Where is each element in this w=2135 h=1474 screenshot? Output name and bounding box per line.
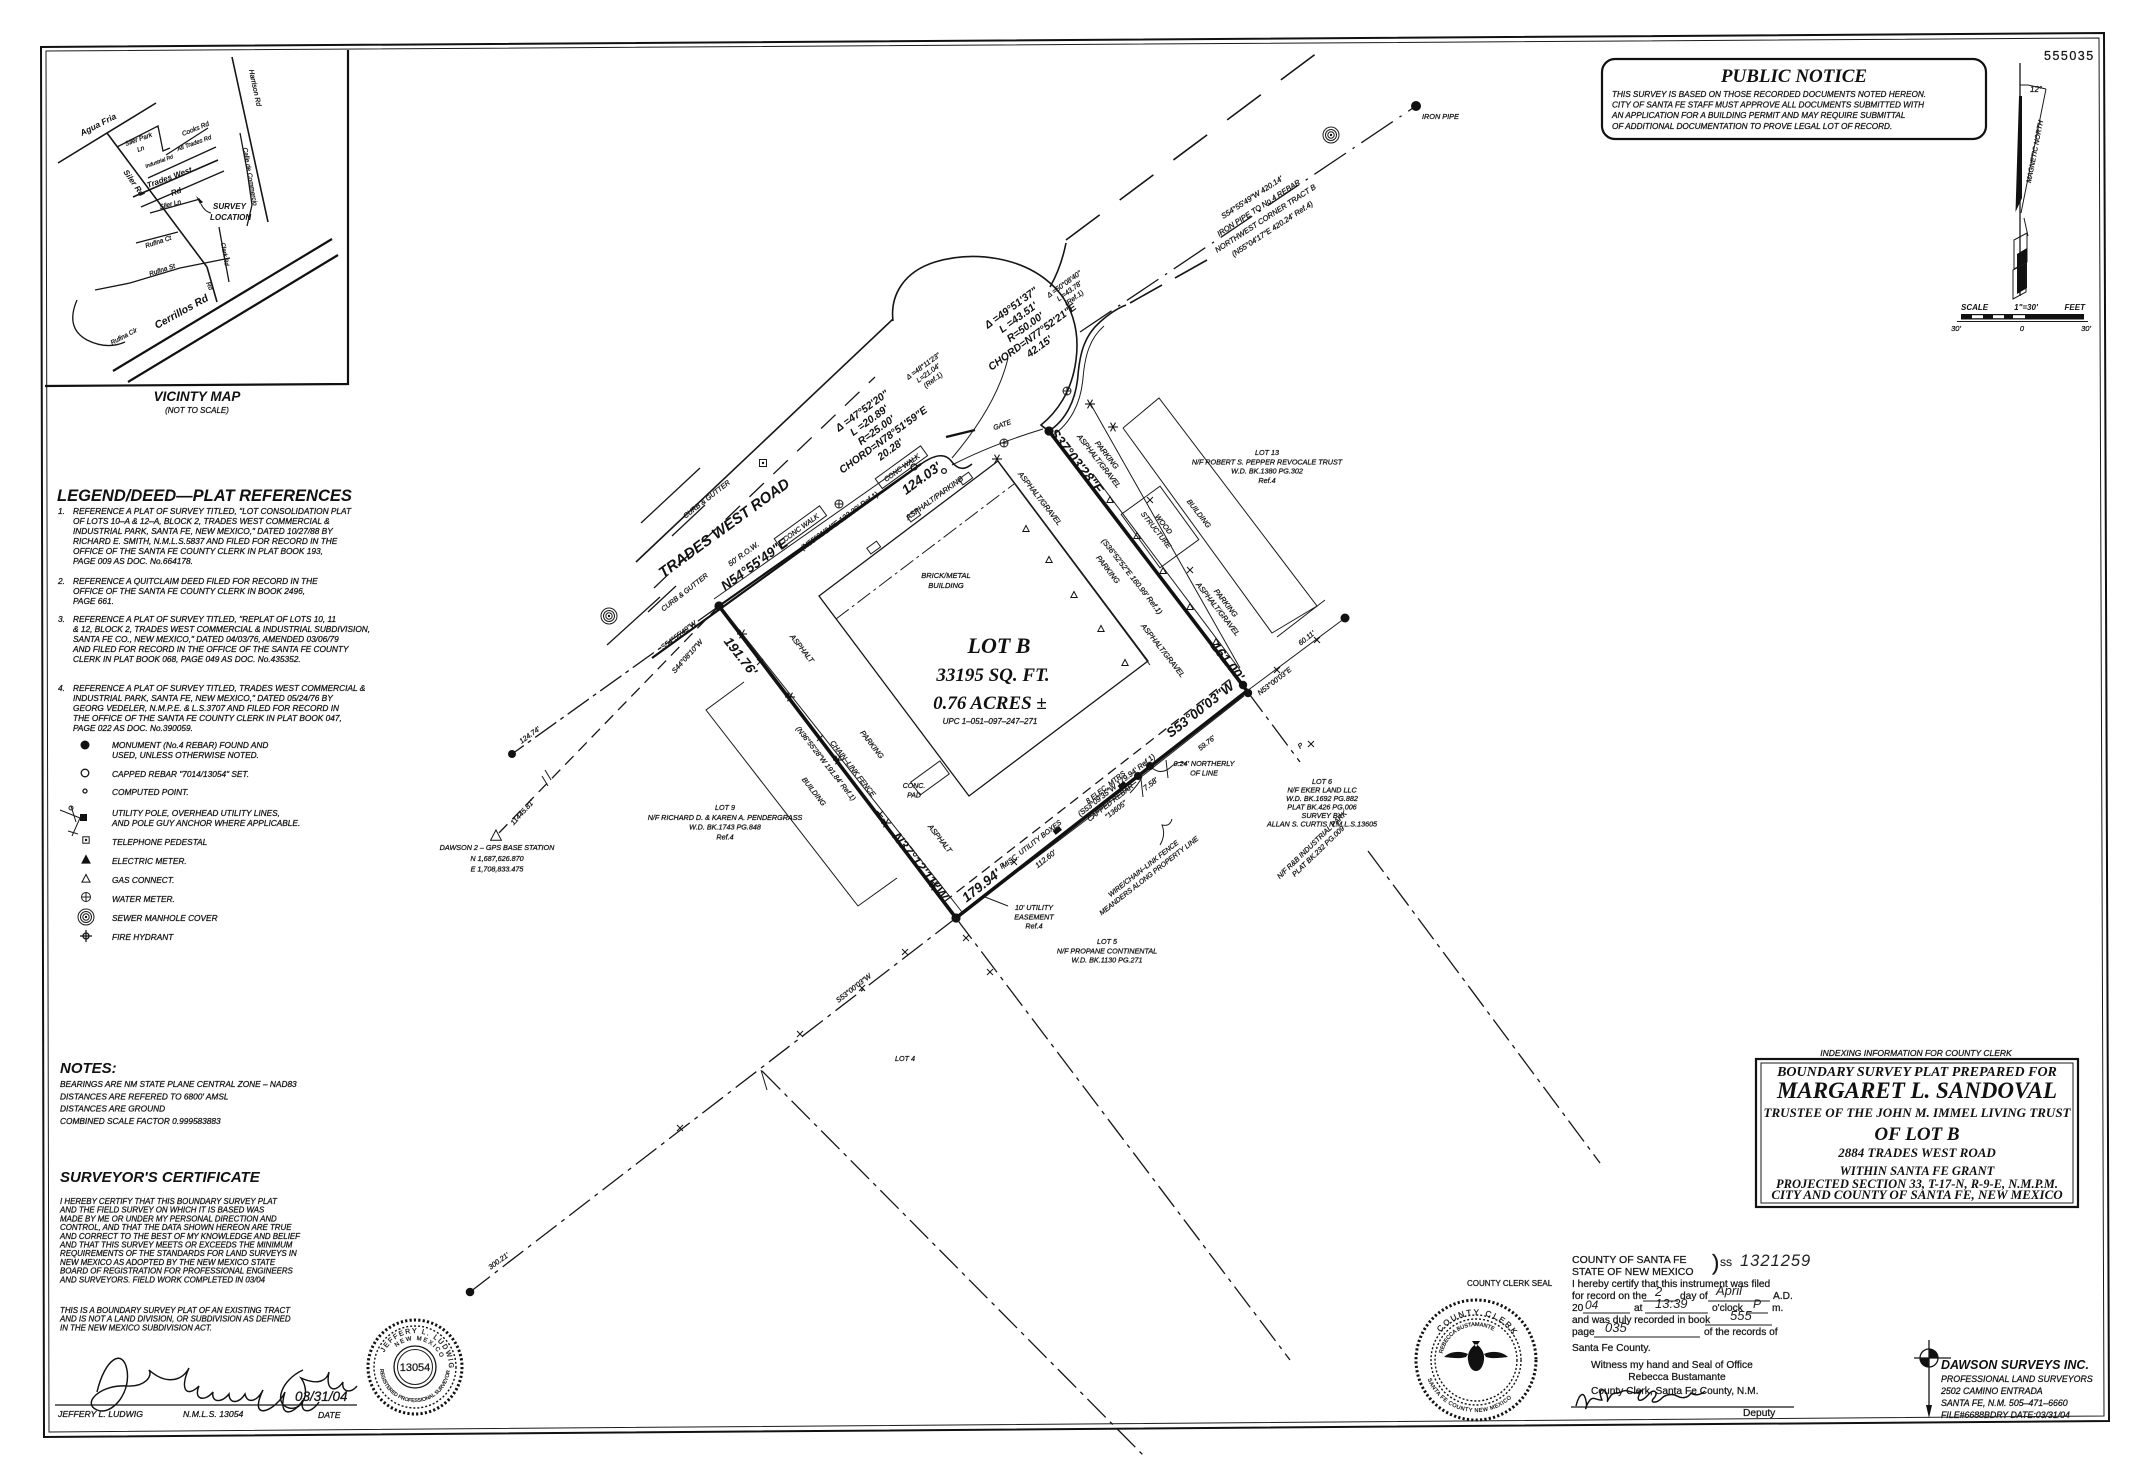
svg-text:COUNTY OF SANTA FE: COUNTY OF SANTA FE xyxy=(1572,1254,1687,1266)
svg-text:CAPPED REBAR "7014/13054" SET.: CAPPED REBAR "7014/13054" SET. xyxy=(112,769,249,779)
svg-text:LOT 5: LOT 5 xyxy=(1097,937,1118,946)
svg-text:SS: SS xyxy=(1720,1258,1732,1268)
svg-text:Rebecca Bustamante: Rebecca Bustamante xyxy=(1628,1372,1726,1383)
svg-text:WITHIN SANTA FE GRANT: WITHIN SANTA FE GRANT xyxy=(1840,1164,1996,1178)
svg-text:N/F PROPANE CONTINENTAL: N/F PROPANE CONTINENTAL xyxy=(1057,946,1157,955)
svg-text:555035: 555035 xyxy=(2044,49,2095,63)
svg-text:CONTROL, AND THAT THE DATA SHO: CONTROL, AND THAT THE DATA SHOWN HEREON … xyxy=(60,1223,292,1232)
svg-text:PUBLIC NOTICE: PUBLIC NOTICE xyxy=(1720,66,1867,87)
svg-text:N/F ROBERT S. PEPPER REVOCALE: N/F ROBERT S. PEPPER REVOCALE TRUST xyxy=(1192,457,1343,466)
svg-text:PAGE 009 AS DOC. No.664178.: PAGE 009 AS DOC. No.664178. xyxy=(73,556,193,566)
svg-text:UTILITY POLE, OVERHEAD UTILITY: UTILITY POLE, OVERHEAD UTILITY LINES, xyxy=(112,808,280,818)
svg-text:Witness my hand and Seal of Of: Witness my hand and Seal of Office xyxy=(1591,1360,1753,1371)
svg-text:SANTA FE CO., NEW MEXICO," DAT: SANTA FE CO., NEW MEXICO," DATED 04/03/7… xyxy=(73,634,339,644)
svg-text:PROFESSIONAL LAND SURVEYORS: PROFESSIONAL LAND SURVEYORS xyxy=(1941,1374,2093,1384)
svg-text:ELECTRIC METER.: ELECTRIC METER. xyxy=(112,856,187,866)
svg-text:CITY AND COUNTY OF SANTA FE, N: CITY AND COUNTY OF SANTA FE, NEW MEXICO xyxy=(1771,1187,2063,1202)
svg-text:1.: 1. xyxy=(58,506,65,516)
svg-text:RICHARD E. SMITH, N.M.L.S.5837: RICHARD E. SMITH, N.M.L.S.5837 AND FILED… xyxy=(73,536,338,546)
svg-text:DISTANCES ARE REFERED TO 6800': DISTANCES ARE REFERED TO 6800' AMSL xyxy=(60,1091,229,1101)
svg-text:USED, UNLESS OTHERWISE NOTED.: USED, UNLESS OTHERWISE NOTED. xyxy=(112,750,259,760)
svg-text:SCALE: SCALE xyxy=(1961,303,1989,312)
svg-text:GEORG VEDELER, N.M.P.E. & L.S.: GEORG VEDELER, N.M.P.E. & L.S.3707 AND F… xyxy=(73,703,339,713)
svg-text:13054: 13054 xyxy=(400,1362,431,1374)
svg-text:JEFFERY L. LUDWIG: JEFFERY L. LUDWIG xyxy=(57,1409,143,1419)
svg-text:SEWER MANHOLE COVER: SEWER MANHOLE COVER xyxy=(112,913,218,923)
svg-text:Santa Fe County.: Santa Fe County. xyxy=(1572,1343,1651,1354)
svg-text:2.: 2. xyxy=(57,576,65,586)
svg-text:SURVEY: SURVEY xyxy=(213,202,247,211)
svg-text:COMPUTED POINT.: COMPUTED POINT. xyxy=(112,787,189,797)
svg-text:NOTES:: NOTES: xyxy=(60,1060,117,1077)
svg-text:0.24' NORTHERLY: 0.24' NORTHERLY xyxy=(1174,759,1236,768)
svg-text:AND IS NOT A LAND DIVISION, OR: AND IS NOT A LAND DIVISION, OR SUBDIVISI… xyxy=(59,1315,291,1324)
svg-text:3.: 3. xyxy=(58,614,65,624)
svg-text:2502 CAMINO ENTRADA: 2502 CAMINO ENTRADA xyxy=(1940,1386,2043,1396)
svg-text:IRON PIPE: IRON PIPE xyxy=(1422,112,1459,121)
svg-text:DISTANCES ARE GROUND: DISTANCES ARE GROUND xyxy=(60,1104,165,1114)
svg-text:THE OFFICE OF THE SANTA FE COU: THE OFFICE OF THE SANTA FE COUNTY CLERK … xyxy=(73,713,342,723)
svg-text:PAGE 661.: PAGE 661. xyxy=(73,596,114,606)
svg-text:LOT 9: LOT 9 xyxy=(715,803,735,812)
svg-text:BEARINGS ARE NM STATE PLANE CE: BEARINGS ARE NM STATE PLANE CENTRAL ZONE… xyxy=(60,1079,297,1089)
svg-text:REFERENCE A PLAT OF SURVEY TIT: REFERENCE A PLAT OF SURVEY TITLED, "LOT … xyxy=(73,506,352,516)
svg-text:m.: m. xyxy=(1772,1303,1783,1314)
svg-text:REFERENCE A PLAT OF SURVEY TIT: REFERENCE A PLAT OF SURVEY TITLED, TRADE… xyxy=(73,683,366,693)
svg-text:VICINTY MAP: VICINTY MAP xyxy=(154,389,242,404)
svg-text:FILE#6688BDRY DATE:03/31/: FILE#6688BDRY DATE:03/31/04 xyxy=(1941,1410,2070,1420)
svg-text:I HEREBY CERTIFY THAT THIS BOU: I HEREBY CERTIFY THAT THIS BOUNDARY SURV… xyxy=(60,1197,278,1206)
svg-text:STATE OF NEW MEXICO: STATE OF NEW MEXICO xyxy=(1572,1266,1694,1278)
svg-text:TELEPHONE PEDESTAL: TELEPHONE PEDESTAL xyxy=(112,837,208,847)
svg-text:Ref.4: Ref.4 xyxy=(1025,922,1042,931)
svg-text:33195 SQ. FT.: 33195 SQ. FT. xyxy=(935,665,1049,686)
svg-text:OF LOT B: OF LOT B xyxy=(1874,1124,1959,1145)
svg-text:OF LOTS 10–A & 12–A, BLOCK 2,: OF LOTS 10–A & 12–A, BLOCK 2, TRADES WES… xyxy=(73,516,330,526)
svg-text:AND CORRECT TO THE BEST OF MY: AND CORRECT TO THE BEST OF MY KNOWLEDGE … xyxy=(59,1232,301,1241)
svg-text:April: April xyxy=(1715,1283,1743,1298)
svg-text:04: 04 xyxy=(1585,1298,1599,1312)
svg-text:CLERK IN PLAT BOOK 068, PAGE 0: CLERK IN PLAT BOOK 068, PAGE 049 AS DOC.… xyxy=(73,654,301,664)
svg-text:MARGARET L. SANDOVAL: MARGARET L. SANDOVAL xyxy=(1776,1078,2057,1103)
svg-text:MADE BY ME OR UNDER MY PERSONA: MADE BY ME OR UNDER MY PERSONAL DIRECTIO… xyxy=(60,1214,277,1223)
svg-text:AND THAT THIS SURVEY MEETS OR: AND THAT THIS SURVEY MEETS OR EXCEEDS TH… xyxy=(59,1241,293,1250)
svg-text:AN APPLICATION FOR A BUILDING: AN APPLICATION FOR A BUILDING PERMIT AND… xyxy=(1611,111,1905,120)
svg-text:and was duly recorded in book: and was duly recorded in book xyxy=(1572,1315,1711,1326)
svg-text:TRUSTEE OF THE JOHN M. IMMEL L: TRUSTEE OF THE JOHN M. IMMEL LIVING TRUS… xyxy=(1764,1105,2072,1120)
svg-text:BOARD OF REGISTRATION FOR PROF: BOARD OF REGISTRATION FOR PROFESSIONAL E… xyxy=(60,1267,294,1276)
svg-text:PAGE 022 AS DOC. No.390059.: PAGE 022 AS DOC. No.390059. xyxy=(73,723,193,733)
svg-text:AND THE FIELD SURVEY ON WHICH: AND THE FIELD SURVEY ON WHICH IT IS BASE… xyxy=(59,1206,265,1215)
svg-text:AND POLE GUY ANCHOR WHERE APPL: AND POLE GUY ANCHOR WHERE APPLICABLE. xyxy=(111,818,300,828)
svg-text:CONC.: CONC. xyxy=(903,783,926,790)
svg-text:page: page xyxy=(1572,1327,1595,1338)
svg-text:20: 20 xyxy=(1572,1303,1584,1314)
svg-text:INDUSTRIAL PARK, SANTA FE, NEW: INDUSTRIAL PARK, SANTA FE, NEW MEXICO," … xyxy=(73,526,334,536)
svg-text:1"=30': 1"=30' xyxy=(2014,303,2039,312)
svg-text:REQUIREMENTS OF THE STANDARDS: REQUIREMENTS OF THE STANDARDS FOR LAND S… xyxy=(60,1249,297,1258)
svg-text:): ) xyxy=(1712,1250,1719,1275)
svg-text:2884 TRADES WEST ROAD: 2884 TRADES WEST ROAD xyxy=(1837,1145,1996,1160)
svg-text:FEET: FEET xyxy=(2065,303,2087,312)
svg-text:& 12, BLOCK 2, TRADES WEST COM: & 12, BLOCK 2, TRADES WEST COMMERCIAL & … xyxy=(73,624,370,634)
svg-text:N 1,687,626.870: N 1,687,626.870 xyxy=(470,854,523,863)
svg-text:W.D. BK.1743 PG.848: W.D. BK.1743 PG.848 xyxy=(689,823,761,832)
svg-text:DAWSON 2 – GPS BASE STATION: DAWSON 2 – GPS BASE STATION xyxy=(440,843,555,852)
svg-text:W.D. BK.1130 PG.271: W.D. BK.1130 PG.271 xyxy=(1071,956,1142,965)
svg-text:LEGEND/DEED—PLAT REFERENCES: LEGEND/DEED—PLAT REFERENCES xyxy=(57,487,352,505)
svg-text:4.: 4. xyxy=(58,683,65,693)
svg-text:EASEMENT: EASEMENT xyxy=(1014,912,1054,921)
svg-text:P: P xyxy=(1753,1297,1761,1311)
svg-text:WATER METER.: WATER METER. xyxy=(112,894,175,904)
svg-text:OFFICE OF THE SANTA FE COUNTY: OFFICE OF THE SANTA FE COUNTY CLERK IN P… xyxy=(73,546,323,556)
svg-text:N.M.L.S. 13054: N.M.L.S. 13054 xyxy=(183,1409,244,1419)
svg-text:DATE: DATE xyxy=(318,1410,341,1420)
svg-text:Deputy: Deputy xyxy=(1743,1408,1776,1419)
svg-text:LOT 13: LOT 13 xyxy=(1255,448,1279,457)
svg-text:Ref.4: Ref.4 xyxy=(1258,476,1275,485)
svg-text:A.D.: A.D. xyxy=(1773,1291,1793,1302)
svg-text:555: 555 xyxy=(1730,1308,1752,1323)
svg-text:30': 30' xyxy=(2081,324,2091,333)
svg-text:GAS CONNECT.: GAS CONNECT. xyxy=(112,875,174,885)
svg-text:PAD: PAD xyxy=(907,792,921,799)
svg-text:W.D. BK.1380 PG.302: W.D. BK.1380 PG.302 xyxy=(1231,467,1303,476)
svg-text:10' UTILITY: 10' UTILITY xyxy=(1015,903,1054,912)
svg-text:13:39: 13:39 xyxy=(1655,1296,1688,1311)
svg-text:OF LINE: OF LINE xyxy=(1190,768,1218,777)
svg-text:AND FILED FOR RECORD IN THE OF: AND FILED FOR RECORD IN THE OFFICE OF TH… xyxy=(72,644,350,654)
svg-text:BUILDING: BUILDING xyxy=(928,581,964,590)
svg-text:for record on the: for record on the xyxy=(1572,1291,1647,1302)
svg-text:ALLAN S. CURTIS N.M.L.S.13605: ALLAN S. CURTIS N.M.L.S.13605 xyxy=(1266,820,1378,829)
svg-text:AND SURVEYORS. FIELD WORK COMP: AND SURVEYORS. FIELD WORK COMPLETED IN 0… xyxy=(59,1275,266,1284)
svg-text:(NOT TO SCALE): (NOT TO SCALE) xyxy=(165,406,229,415)
svg-text:MONUMENT (No.4 REBAR) FOUND AN: MONUMENT (No.4 REBAR) FOUND AND xyxy=(112,740,268,750)
svg-text:REFERENCE A PLAT OF SURVEY TIT: REFERENCE A PLAT OF SURVEY TITLED, "REPL… xyxy=(73,614,336,624)
svg-text:LOCATION: LOCATION xyxy=(210,213,251,222)
svg-text:03/31/04: 03/31/04 xyxy=(295,1389,348,1404)
svg-text:IN THE NEW MEXICO SUBDIVISION: IN THE NEW MEXICO SUBDIVISION ACT. xyxy=(60,1323,212,1332)
svg-text:COMBINED SCALE FACTOR 0.999583: COMBINED SCALE FACTOR 0.999583883 xyxy=(60,1116,221,1126)
svg-text:THIS SURVEY IS BASED ON THOSE: THIS SURVEY IS BASED ON THOSE RECORDED D… xyxy=(1612,90,1926,99)
svg-text:LOT 4: LOT 4 xyxy=(895,1054,915,1063)
svg-text:INDEXING INFORMATION FOR CO: INDEXING INFORMATION FOR COUNTY CLERK xyxy=(1820,1048,2012,1058)
svg-text:THIS IS A BOUNDARY SURVEY PLAT: THIS IS A BOUNDARY SURVEY PLAT OF AN EXI… xyxy=(60,1306,291,1315)
svg-text:DAWSON SURVEYS INC.: DAWSON SURVEYS INC. xyxy=(1941,1358,2089,1372)
svg-text:at: at xyxy=(1634,1303,1643,1314)
svg-text:UPC 1–051–097–247–271: UPC 1–051–097–247–271 xyxy=(943,717,1038,726)
svg-text:035: 035 xyxy=(1605,1320,1627,1335)
svg-text:SURVEYOR'S CERTIFICATE: SURVEYOR'S CERTIFICATE xyxy=(60,1169,261,1186)
svg-text:NEW MEXICO AS ADOPTED BY THE N: NEW MEXICO AS ADOPTED BY THE NEW MEXICO … xyxy=(60,1258,276,1267)
svg-text:N/F RICHARD D. & KAREN A. PEND: N/F RICHARD D. & KAREN A. PENDERGRASS xyxy=(648,813,803,822)
svg-text:OFFICE OF THE SANTA FE COUNTY: OFFICE OF THE SANTA FE COUNTY CLERK IN B… xyxy=(73,586,305,596)
svg-text:Ref.4: Ref.4 xyxy=(716,832,733,841)
svg-text:COUNTY CLERK SEAL: COUNTY CLERK SEAL xyxy=(1467,1279,1553,1288)
svg-text:FIRE HYDRANT: FIRE HYDRANT xyxy=(112,932,174,942)
svg-text:OF ADDITIONAL DOCUMENTATION TO: OF ADDITIONAL DOCUMENTATION TO PROVE LEG… xyxy=(1612,122,1892,131)
svg-text:E 1,708,833.475: E 1,708,833.475 xyxy=(471,865,525,874)
svg-text:BRICK/METAL: BRICK/METAL xyxy=(921,571,970,580)
svg-text:CITY OF SANTA FE STAFF MUST AP: CITY OF SANTA FE STAFF MUST APPROVE ALL … xyxy=(1612,101,1924,110)
svg-text:30': 30' xyxy=(1951,324,1961,333)
svg-text:LOT B: LOT B xyxy=(967,633,1031,658)
svg-text:1321259: 1321259 xyxy=(1740,1252,1811,1270)
svg-text:12°: 12° xyxy=(2030,85,2043,94)
svg-text:of the records of: of the records of xyxy=(1704,1327,1778,1338)
svg-text:SANTA FE, N.M. 505–471–6660: SANTA FE, N.M. 505–471–6660 xyxy=(1941,1398,2068,1408)
svg-text:0.76 ACRES ±: 0.76 ACRES ± xyxy=(933,693,1047,714)
svg-text:INDUSTRIAL PARK, SANTA FE, NEW: INDUSTRIAL PARK, SANTA FE, NEW MEXICO," … xyxy=(73,693,334,703)
svg-text:REFERENCE A QUITCLAIM DEED FIL: REFERENCE A QUITCLAIM DEED FILED FOR REC… xyxy=(73,576,318,586)
